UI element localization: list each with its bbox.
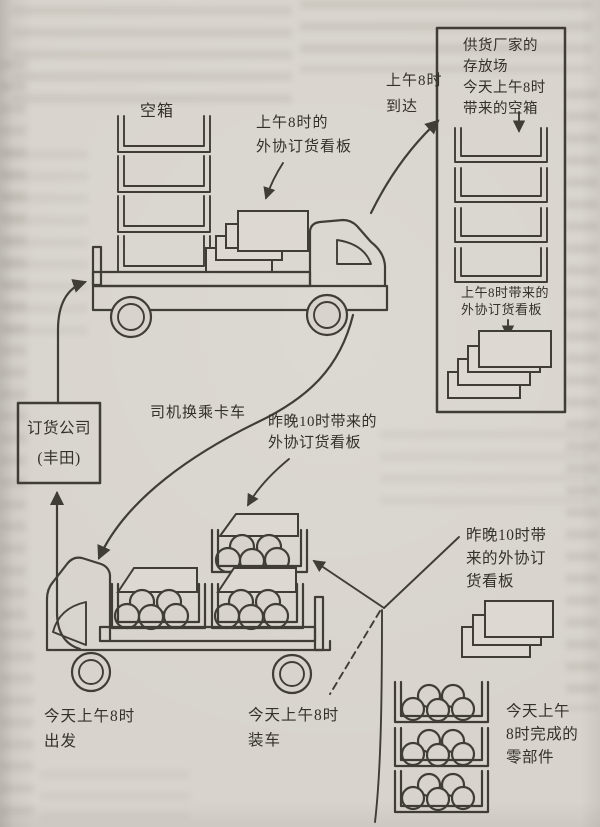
truck-cab-window <box>337 240 371 264</box>
depart-8am-label: 今天上午8时 出发 <box>44 704 135 754</box>
kanban-card <box>485 601 553 637</box>
kanban-card-pile-supplier <box>448 331 551 398</box>
truck-wheel <box>273 655 311 693</box>
parts-rack <box>395 771 488 812</box>
parts-rack-on-truck <box>112 568 205 629</box>
empty-box <box>118 156 210 192</box>
kanban-10pm-label: 昨晚10时带来的 外协订货看板 <box>268 412 377 454</box>
kanban-10pm-right-pointer-line <box>384 537 459 608</box>
empty-box-stack-supplier <box>455 128 547 282</box>
finished-parts-racks <box>395 682 488 812</box>
part <box>264 604 288 628</box>
empty-box <box>455 128 547 162</box>
part <box>452 743 474 765</box>
kanban-10pm-right-label: 昨晚10时带 来的外协订 货看板 <box>466 524 547 593</box>
load-8am-label: 今天上午8时 装车 <box>248 703 339 753</box>
part <box>239 605 263 629</box>
part <box>427 744 449 766</box>
company-to-truck-arrow <box>58 282 85 403</box>
empty-box <box>118 196 210 232</box>
part <box>139 605 163 629</box>
parts-rack <box>395 682 488 722</box>
arrive-8am-arrow <box>371 121 438 213</box>
empty-box <box>118 236 210 272</box>
kanban-card-pile-truck <box>206 211 308 272</box>
truck-rear-wall <box>315 597 323 650</box>
truck-wheel <box>307 295 347 335</box>
empty-box-stack-truck <box>118 116 210 272</box>
parts-rack-loading <box>212 514 307 573</box>
kanban-card <box>238 211 308 251</box>
loading-dashed-line <box>330 611 380 694</box>
truck-rear-wall <box>93 247 101 285</box>
arrive-8am-label: 上午8时 到达 <box>386 68 443 120</box>
driver-switch-label: 司机换乘卡车 <box>150 402 246 425</box>
part <box>402 743 424 765</box>
scanned-book-page: 空箱 上午8时的 外协订货看板 上午8时 到达 供货厂家的 存放场 今天上午8时… <box>0 0 600 827</box>
kanban-card-on-rack <box>220 514 298 536</box>
part <box>427 699 449 721</box>
part <box>164 604 188 628</box>
kanban-card <box>479 331 551 367</box>
truck-bed <box>93 272 310 286</box>
kanban-brought-8am-label: 上午8时带来的 外协订货看板 <box>461 284 549 318</box>
empty-box <box>455 248 547 282</box>
kanban-card-pile-bottom <box>462 601 553 657</box>
pointer-to-loading-rack-arrow <box>314 561 384 608</box>
kanban-8am-pointer-arrow <box>266 163 283 198</box>
truck-cab <box>310 220 385 286</box>
kanban-card-on-rack <box>118 568 197 592</box>
truck-loaded-parts <box>47 558 330 693</box>
ordering-company-label: 订货公司 (丰田) <box>18 414 100 474</box>
parts-rack-on-truck <box>212 568 303 629</box>
empty-box <box>455 168 547 202</box>
empty-box <box>455 208 547 242</box>
truck-wheel <box>72 653 110 691</box>
supplier-storage-label: 供货厂家的 存放场 今天上午8时 带来的空箱 <box>463 36 546 120</box>
kanban-10pm-pointer-arrow <box>248 459 289 505</box>
boundary-line <box>375 610 382 822</box>
truck-wheel <box>111 297 151 337</box>
parts-done-8am-label: 今天上午 8时完成的 零部件 <box>506 700 578 769</box>
empty-boxes-label: 空箱 <box>140 100 174 123</box>
parts-rack <box>395 728 488 766</box>
kanban-8am-label: 上午8时的 外协订货看板 <box>256 111 352 159</box>
